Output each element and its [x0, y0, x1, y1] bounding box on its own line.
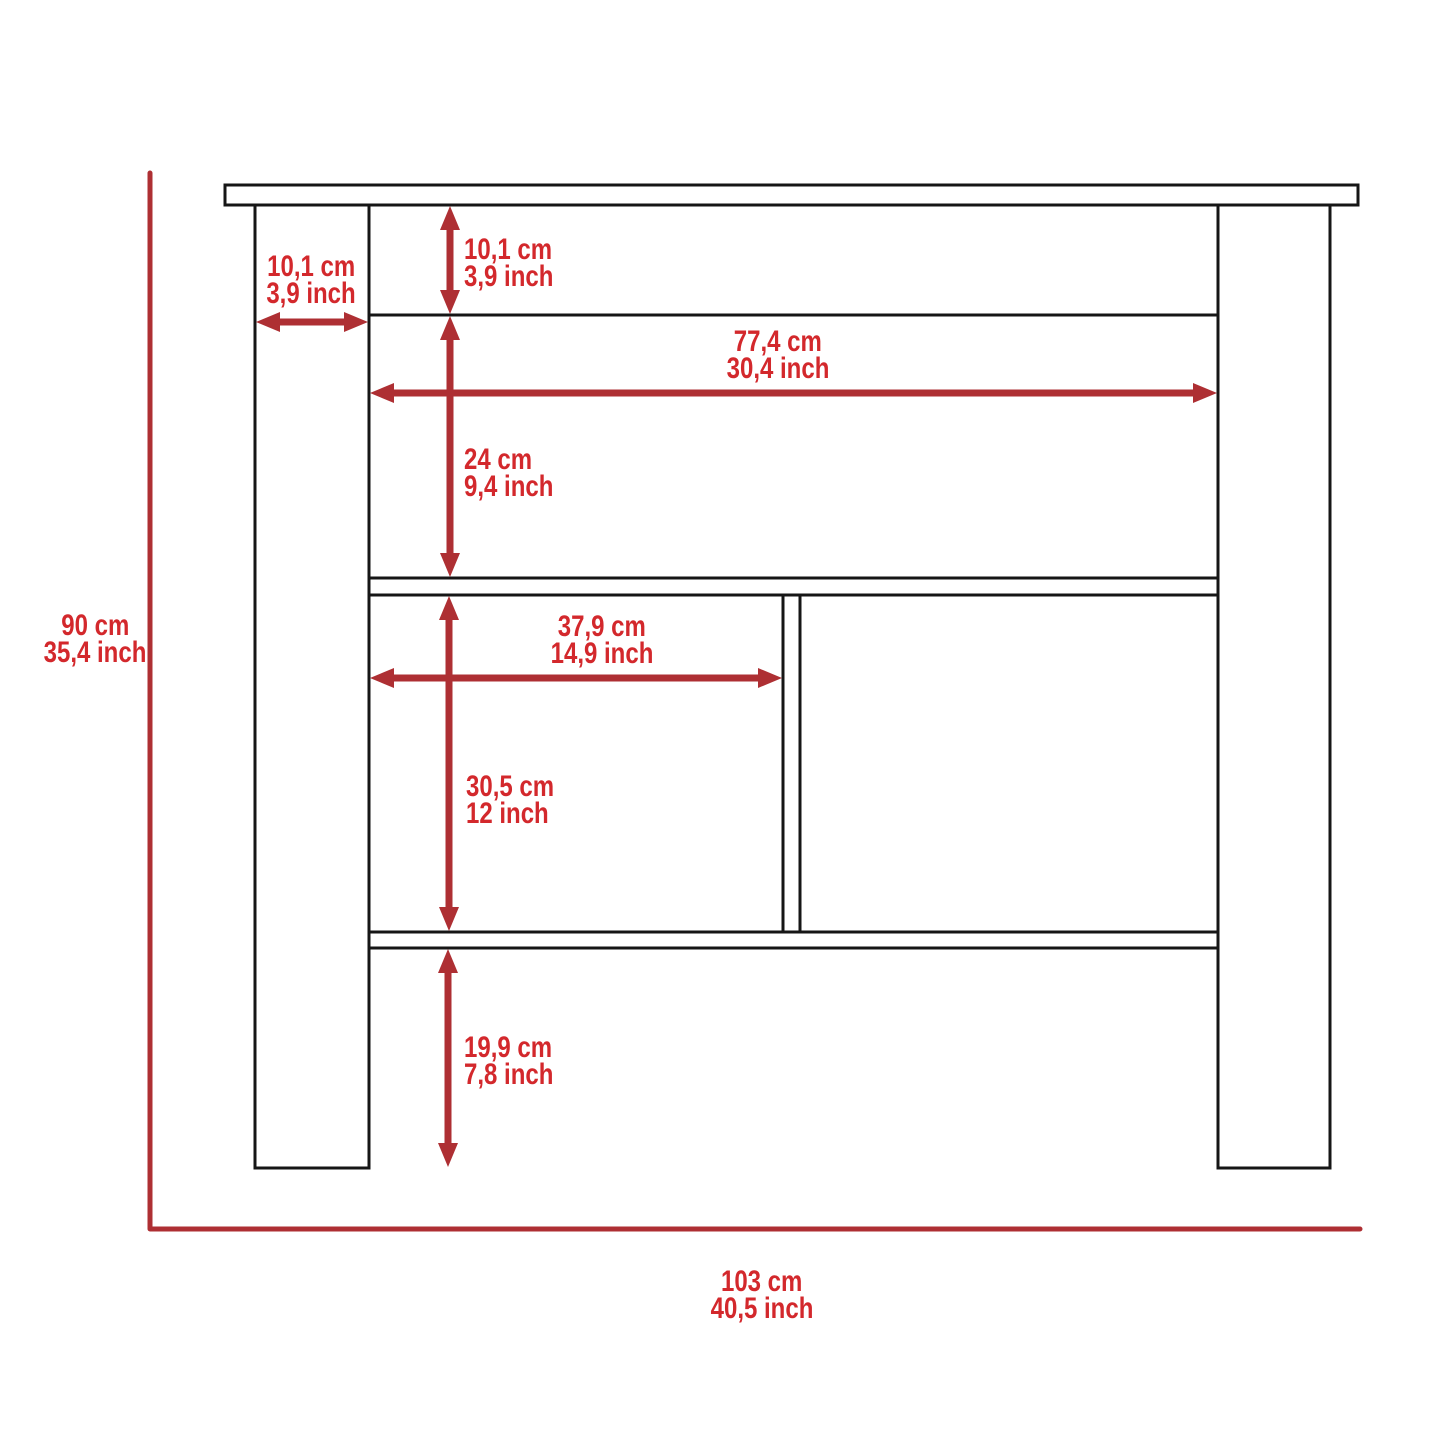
dimension-value-inch: 3,9 inch — [266, 280, 355, 307]
dimension-value-inch: 7,8 inch — [464, 1061, 553, 1088]
diagram-canvas — [0, 0, 1445, 1445]
dimension-arrow-upper-height — [440, 316, 460, 577]
dimension-arrow-left-comp-width — [370, 668, 782, 688]
dimension-value-cm: 10,1 cm — [464, 236, 552, 263]
dimension-value-cm: 103 cm — [721, 1268, 802, 1295]
dimension-value-cm: 77,4 cm — [734, 328, 822, 355]
dimension-label-overall-height: 90 cm 35,4 inch — [31, 612, 159, 666]
dimension-value-cm: 37,9 cm — [558, 613, 646, 640]
dimension-label-left-compartment-width: 37,9 cm 14,9 inch — [538, 613, 666, 667]
dimension-label-compartment-height: 30,5 cm 12 inch — [466, 773, 576, 827]
bottom-shelf — [369, 932, 1218, 948]
left-leg — [255, 205, 369, 1168]
dimension-label-lower-height: 19,9 cm 7,8 inch — [464, 1034, 576, 1088]
dimension-value-inch: 30,4 inch — [727, 355, 830, 382]
dimension-label-rail-height: 10,1 cm 3,9 inch — [464, 236, 576, 290]
dimension-value-inch: 40,5 inch — [711, 1295, 814, 1322]
dimension-value-cm: 30,5 cm — [466, 773, 554, 800]
dimension-value-cm: 90 cm — [61, 612, 129, 639]
dimension-value-inch: 35,4 inch — [44, 639, 147, 666]
dimension-value-cm: 24 cm — [464, 446, 532, 473]
dimension-value-inch: 3,9 inch — [464, 263, 553, 290]
middle-shelf — [369, 578, 1218, 595]
dimension-arrow-lower-height — [438, 949, 458, 1167]
dimension-arrow-inner-width — [370, 383, 1217, 403]
dimension-value-cm: 10,1 cm — [267, 253, 355, 280]
dimension-value-cm: 19,9 cm — [464, 1034, 552, 1061]
dimension-value-inch: 9,4 inch — [464, 473, 553, 500]
dimension-diagram: 10,1 cm 3,9 inch 10,1 cm 3,9 inch 77,4 c… — [0, 0, 1445, 1445]
dimension-label-leg-width: 10,1 cm 3,9 inch — [255, 253, 367, 307]
dimension-arrow-comp-height — [439, 596, 459, 931]
dimension-arrow-rail-height — [440, 206, 460, 314]
top-board — [225, 185, 1358, 205]
dimension-value-inch: 12 inch — [466, 800, 549, 827]
dimension-label-inner-width: 77,4 cm 30,4 inch — [714, 328, 842, 382]
dimension-value-inch: 14,9 inch — [551, 640, 654, 667]
compartment-divider — [783, 595, 800, 932]
dimension-label-upper-height: 24 cm 9,4 inch — [464, 446, 576, 500]
dimension-label-overall-width: 103 cm 40,5 inch — [698, 1268, 826, 1322]
right-leg — [1218, 205, 1330, 1168]
